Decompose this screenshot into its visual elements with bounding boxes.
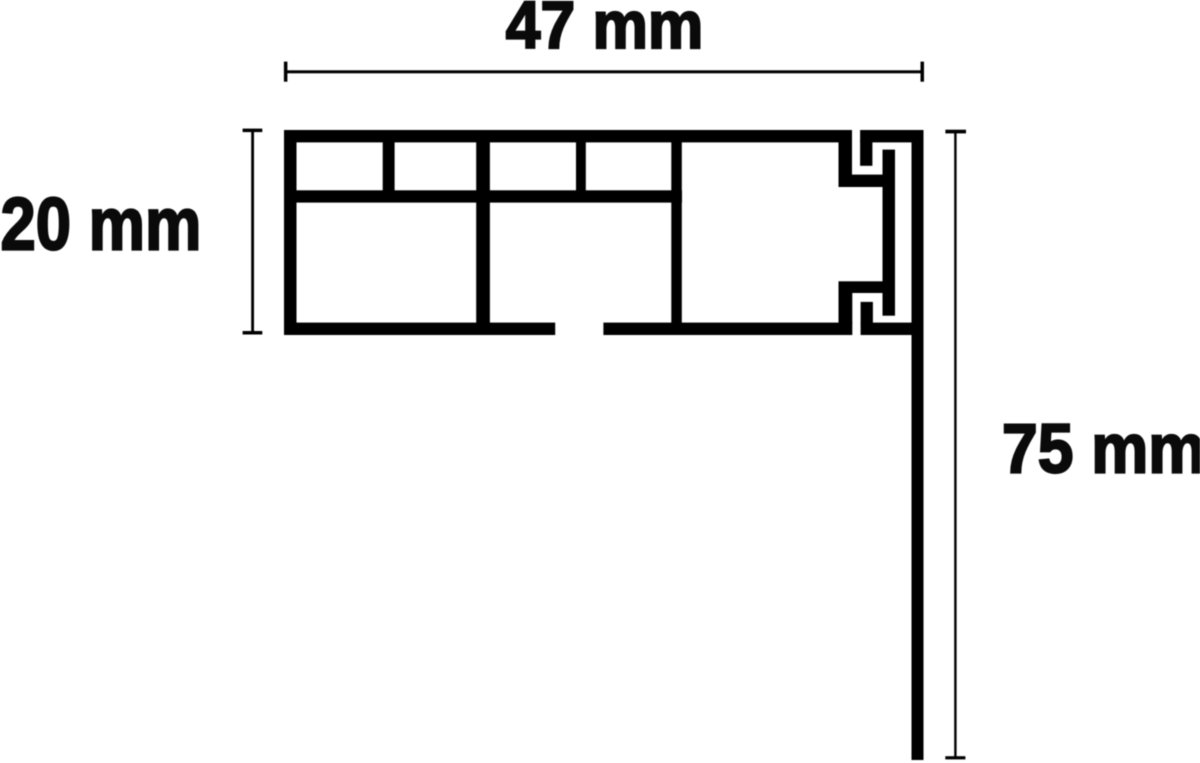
svg-text:47 mm: 47 mm bbox=[506, 0, 704, 62]
svg-text:75 mm: 75 mm bbox=[1002, 410, 1200, 488]
svg-text:20 mm: 20 mm bbox=[1, 182, 202, 266]
